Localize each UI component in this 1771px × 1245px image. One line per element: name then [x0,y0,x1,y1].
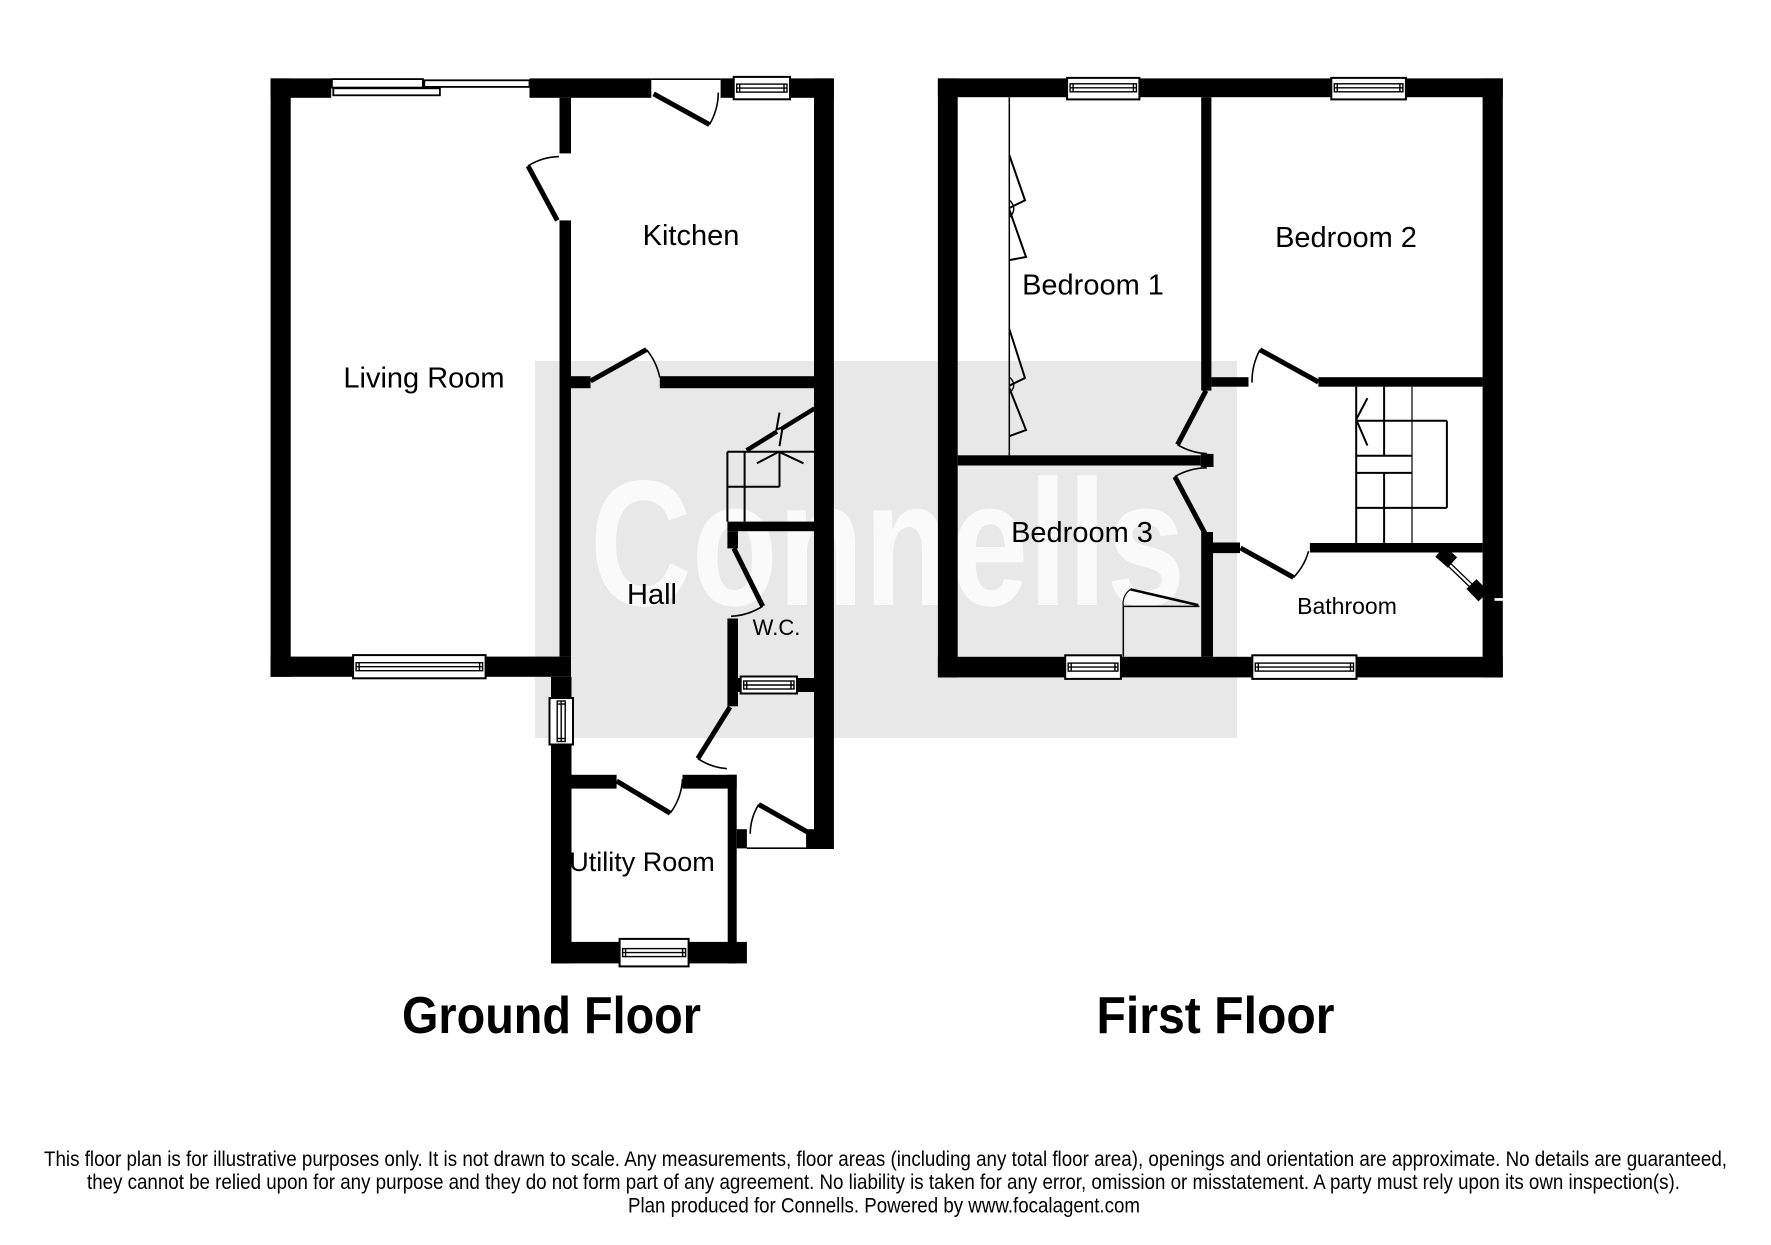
svg-text:Utility Room: Utility Room [569,847,715,877]
svg-text:they cannot be relied upon for: they cannot be relied upon for any purpo… [87,1171,1680,1194]
svg-text:Bedroom 2: Bedroom 2 [1275,222,1417,254]
svg-text:Bathroom: Bathroom [1297,593,1397,619]
svg-text:Hall: Hall [627,579,677,611]
svg-text:Bedroom 3: Bedroom 3 [1011,517,1153,549]
svg-text:Kitchen: Kitchen [643,220,740,252]
svg-text:Living Room: Living Room [343,363,504,395]
svg-text:First Floor: First Floor [1097,987,1335,1045]
svg-text:Bedroom 1: Bedroom 1 [1022,270,1164,302]
svg-text:W.C.: W.C. [753,615,801,640]
svg-text:Ground Floor: Ground Floor [402,987,701,1045]
svg-text:This floor plan is for illustr: This floor plan is for illustrative purp… [44,1148,1727,1171]
svg-text:Plan produced for Connells. Po: Plan produced for Connells. Powered by w… [628,1194,1140,1217]
